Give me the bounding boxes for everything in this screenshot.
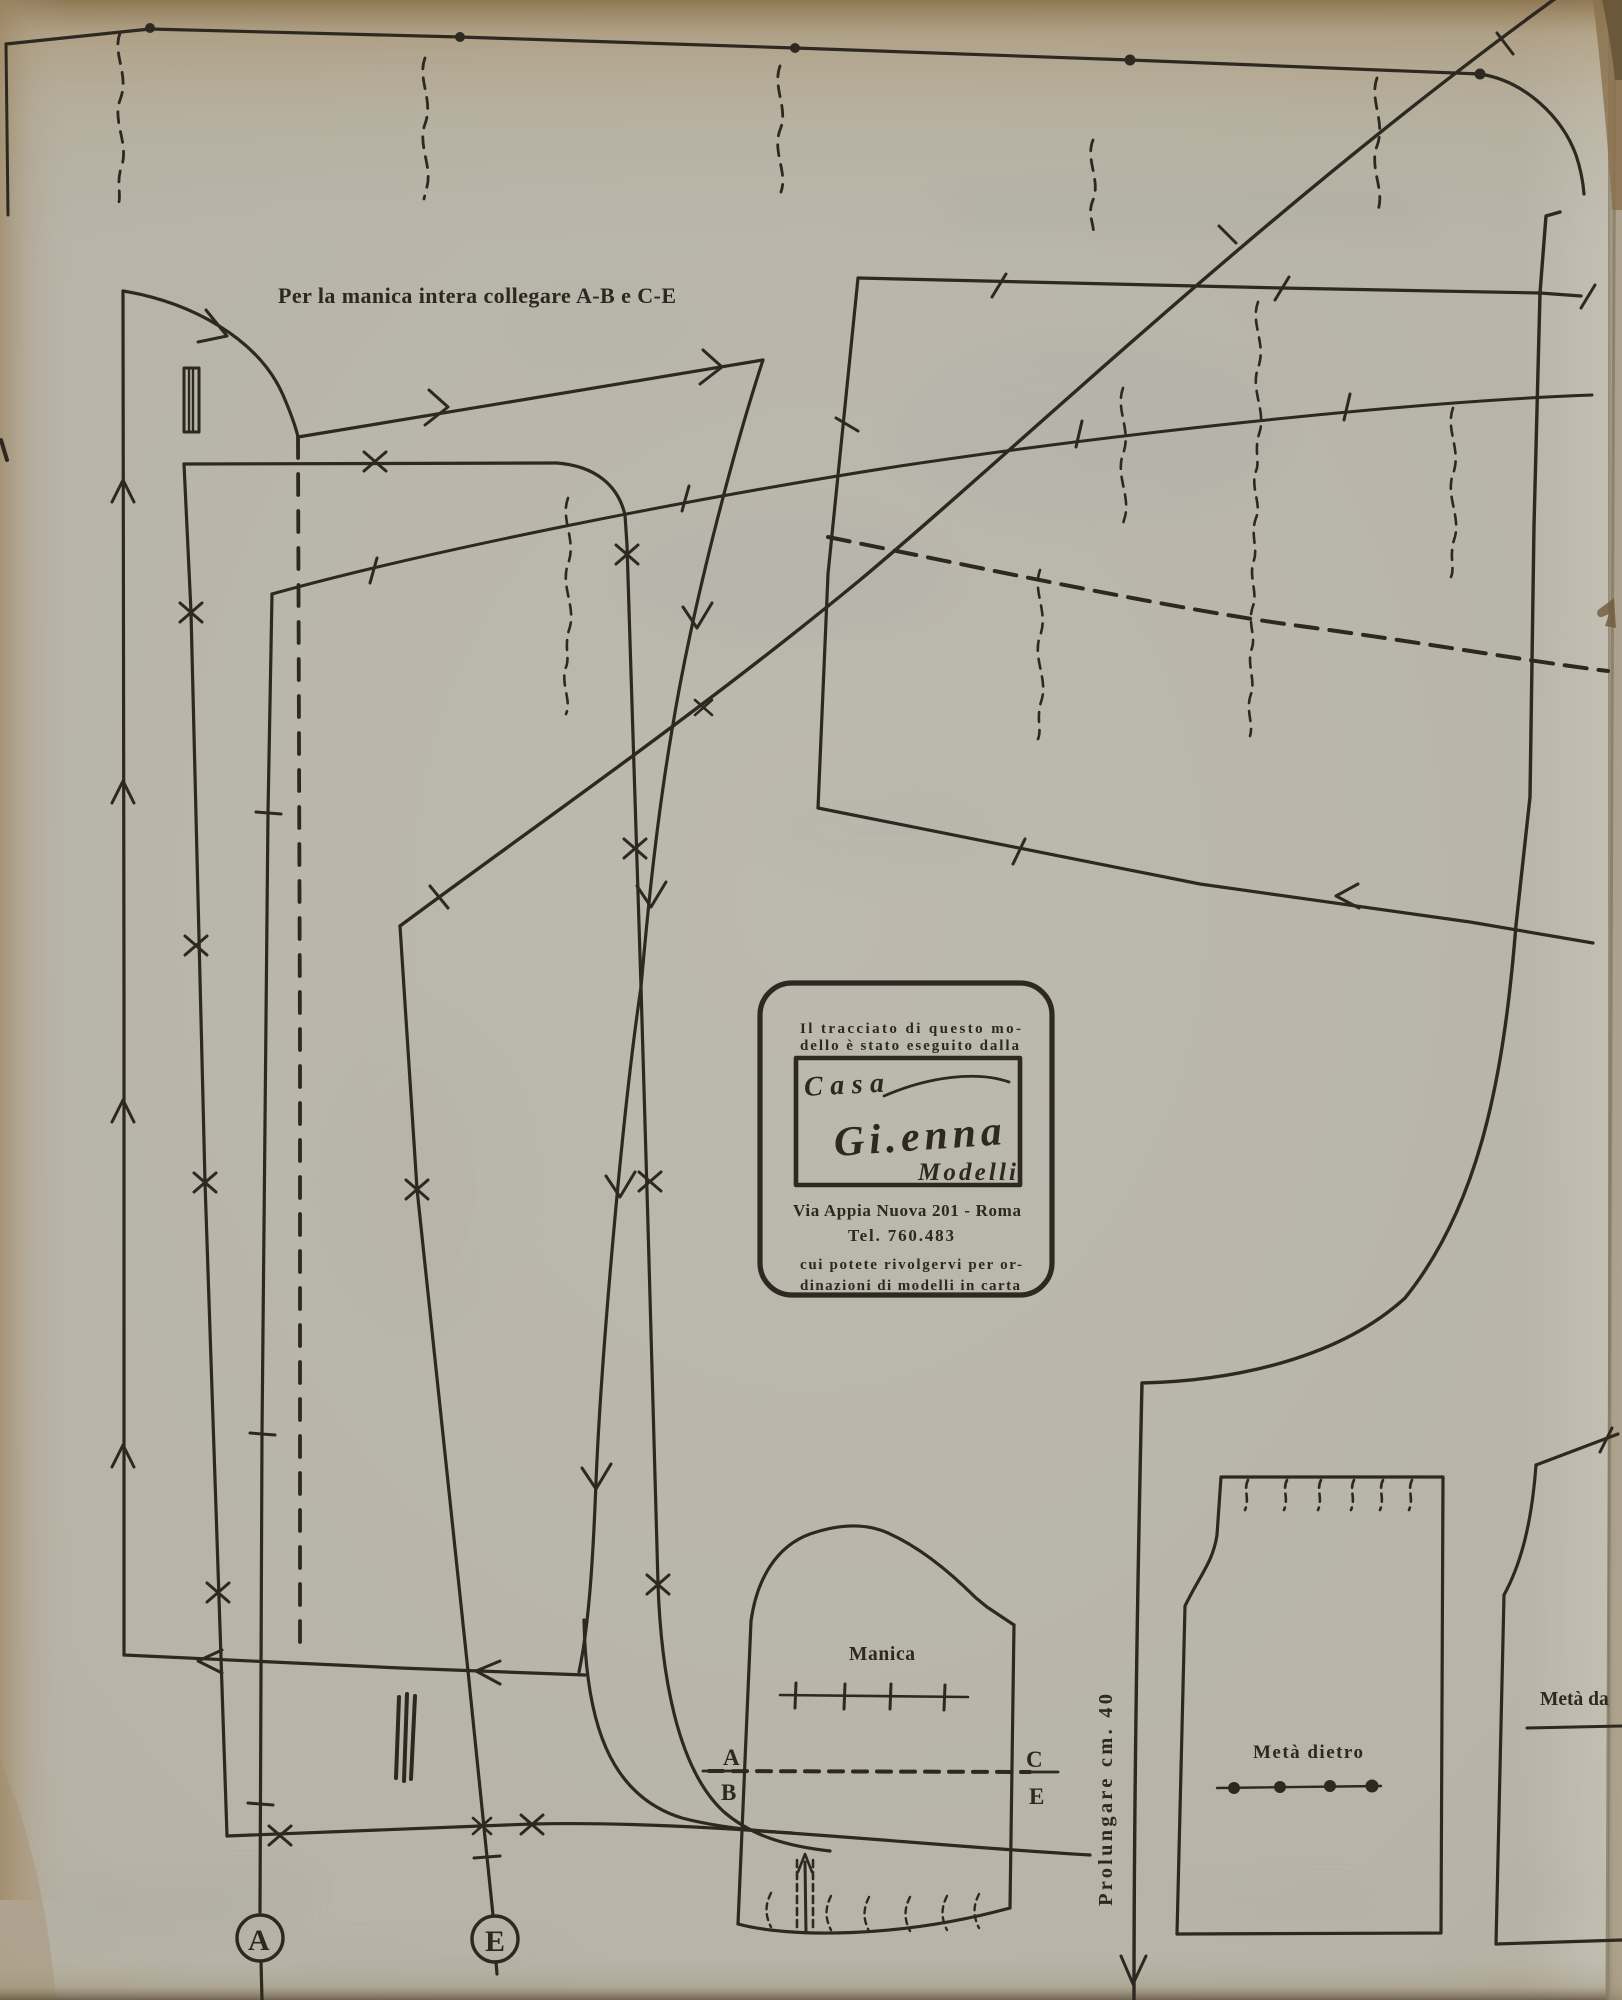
svg-text:C: C — [1026, 1747, 1043, 1772]
svg-text:Metà da: Metà da — [1540, 1689, 1609, 1710]
svg-text:Via Appia Nuova 201 - Roma: Via Appia Nuova 201 - Roma — [793, 1201, 1022, 1220]
svg-text:Per la manica intera collegare: Per la manica intera collegare A-B e C-E — [278, 283, 676, 308]
svg-text:Tel. 760.483: Tel. 760.483 — [848, 1226, 954, 1245]
svg-text:Manica: Manica — [849, 1644, 915, 1665]
svg-text:Modelli: Modelli — [917, 1159, 1016, 1186]
svg-text:Il tracciato di questo mo-: Il tracciato di questo mo- — [800, 1021, 1021, 1037]
svg-text:A: A — [248, 1924, 270, 1957]
svg-text:cui potete rivolgervi per or-: cui potete rivolgervi per or- — [800, 1257, 1022, 1273]
svg-text:E: E — [485, 1925, 505, 1958]
svg-text:E: E — [1029, 1784, 1044, 1809]
svg-text:Prolungare cm. 40: Prolungare cm. 40 — [1095, 1694, 1117, 1906]
svg-text:dello è stato eseguito dalla: dello è stato eseguito dalla — [800, 1038, 1020, 1054]
svg-text:Metà dietro: Metà dietro — [1253, 1742, 1363, 1763]
svg-text:A: A — [723, 1745, 740, 1770]
svg-text:B: B — [721, 1780, 736, 1805]
